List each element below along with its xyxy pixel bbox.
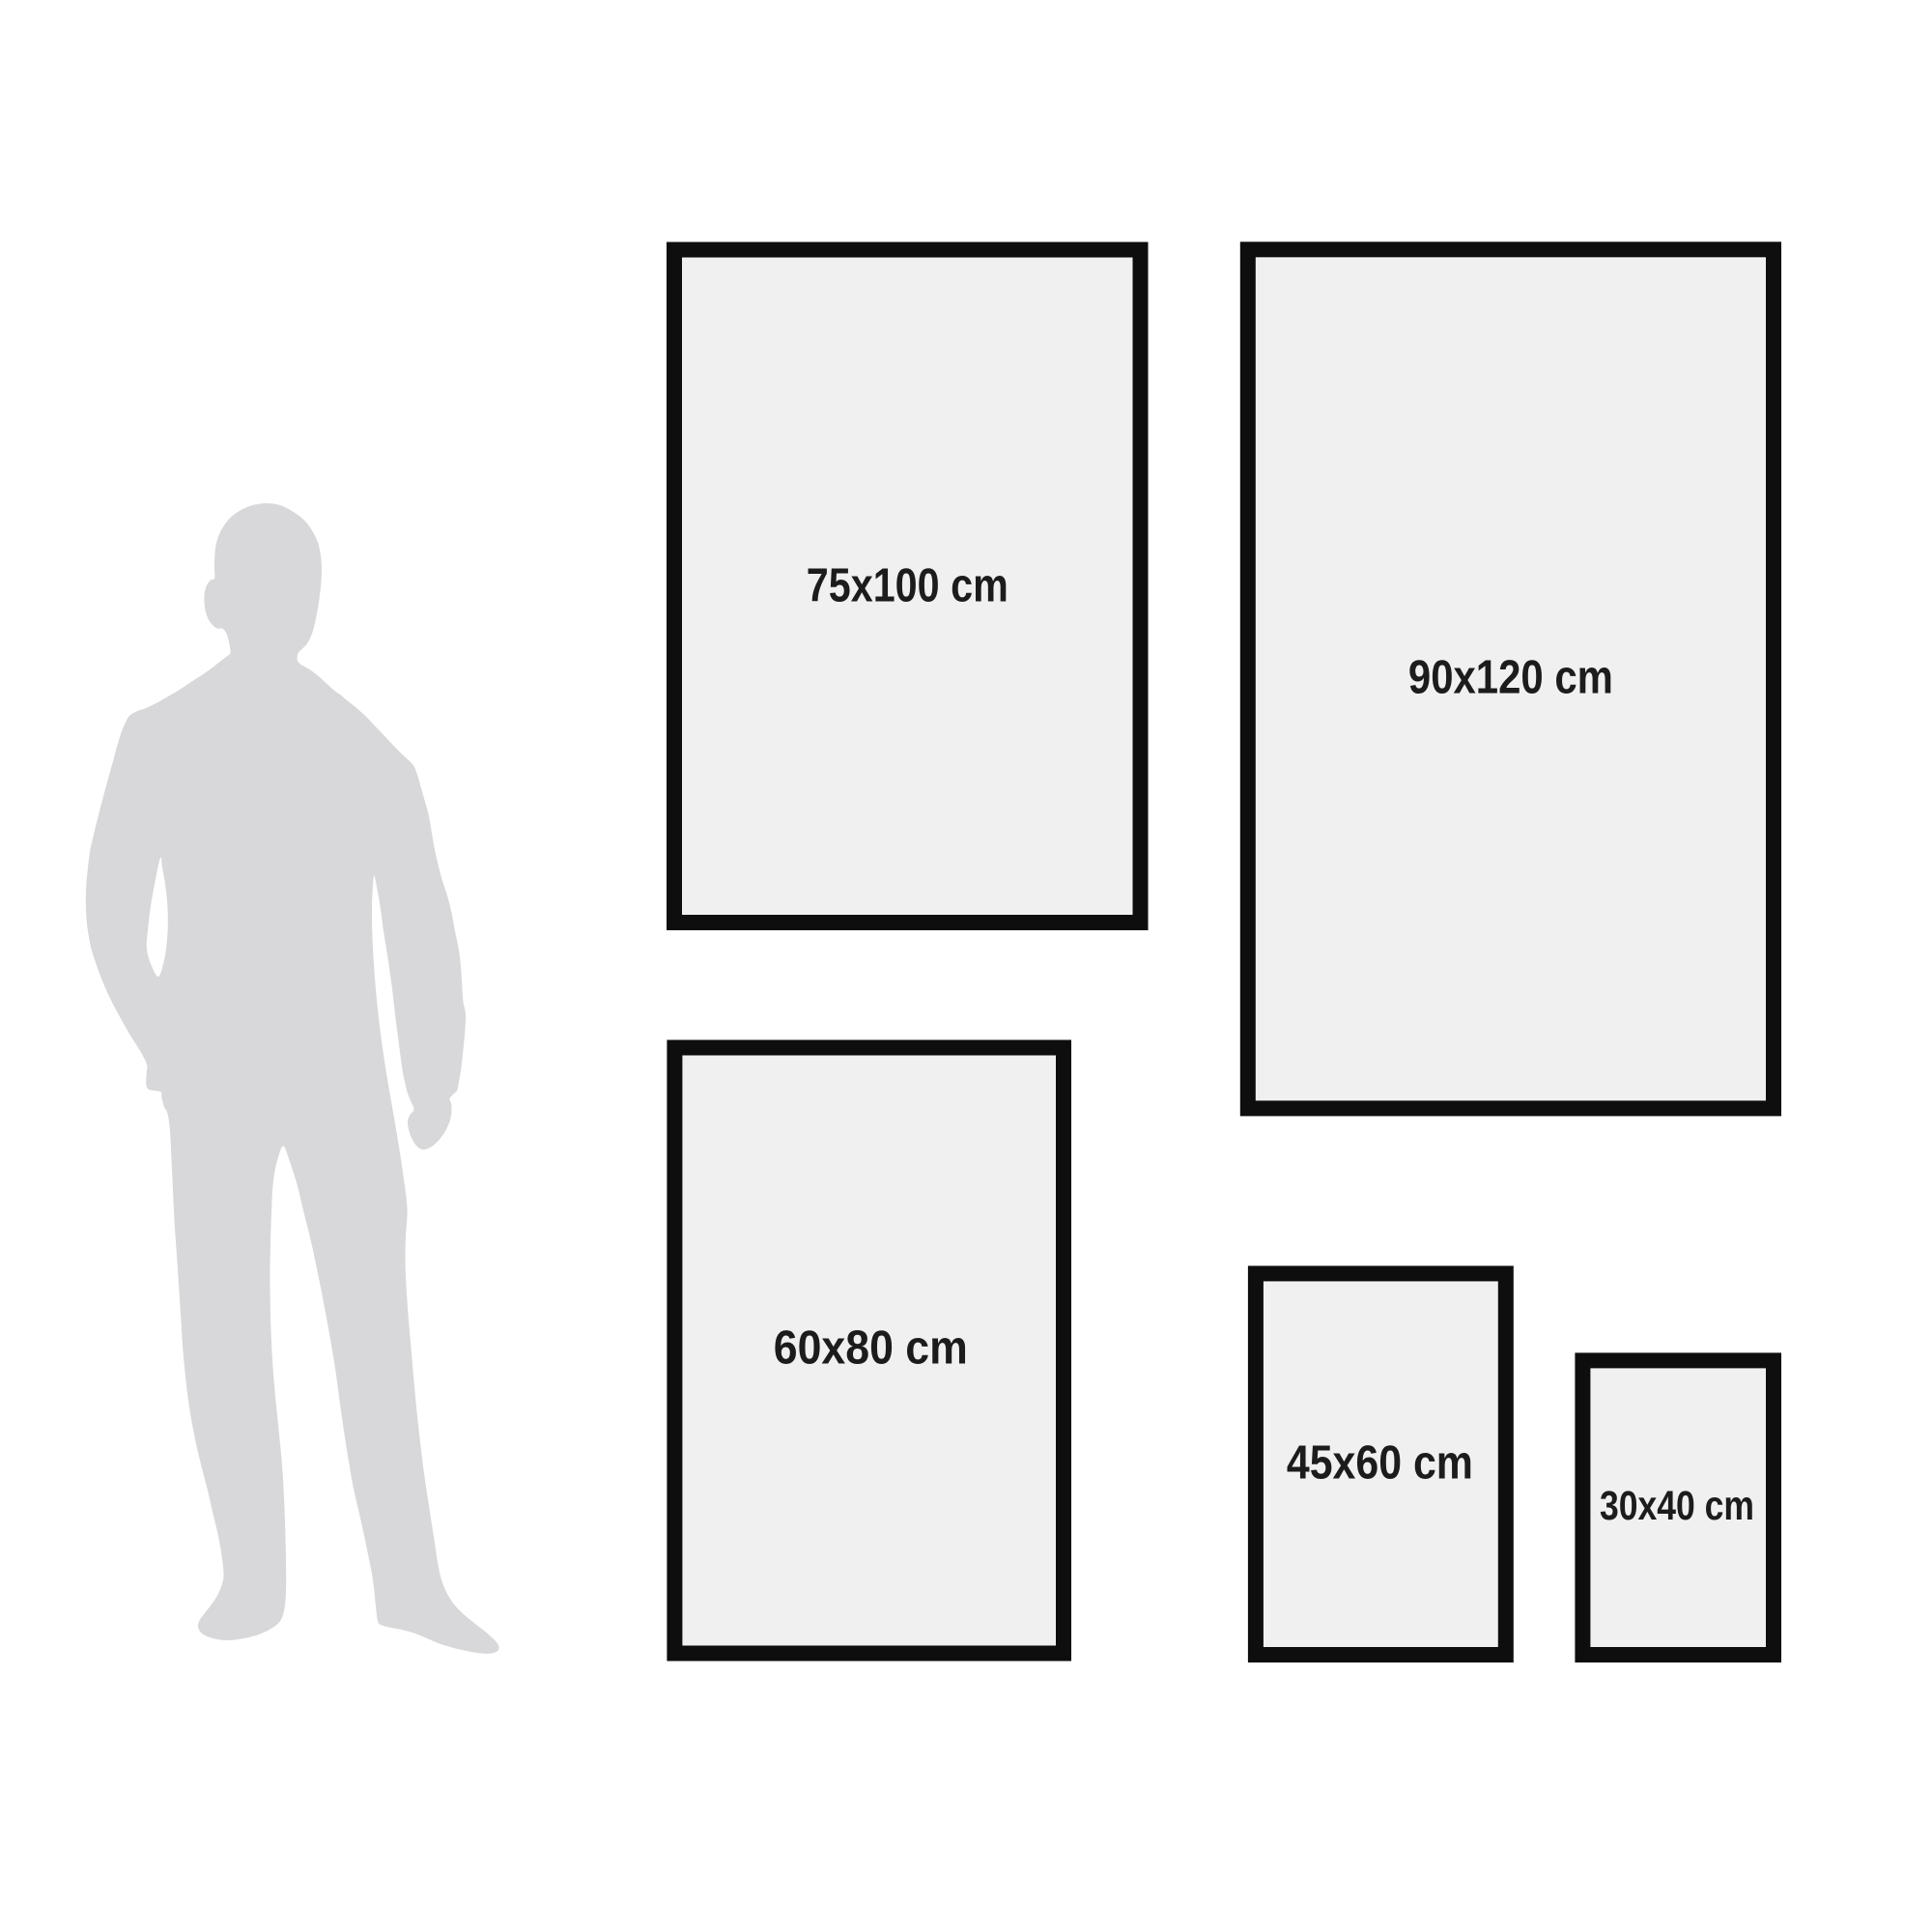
svg-text:75x100 cm: 75x100 cm [807, 559, 1009, 611]
svg-text:60x80 cm: 60x80 cm [774, 1322, 968, 1375]
svg-text:30x40 cm: 30x40 cm [1600, 1483, 1754, 1529]
svg-text:45x60 cm: 45x60 cm [1287, 1437, 1473, 1490]
svg-text:90x120 cm: 90x120 cm [1408, 652, 1613, 704]
